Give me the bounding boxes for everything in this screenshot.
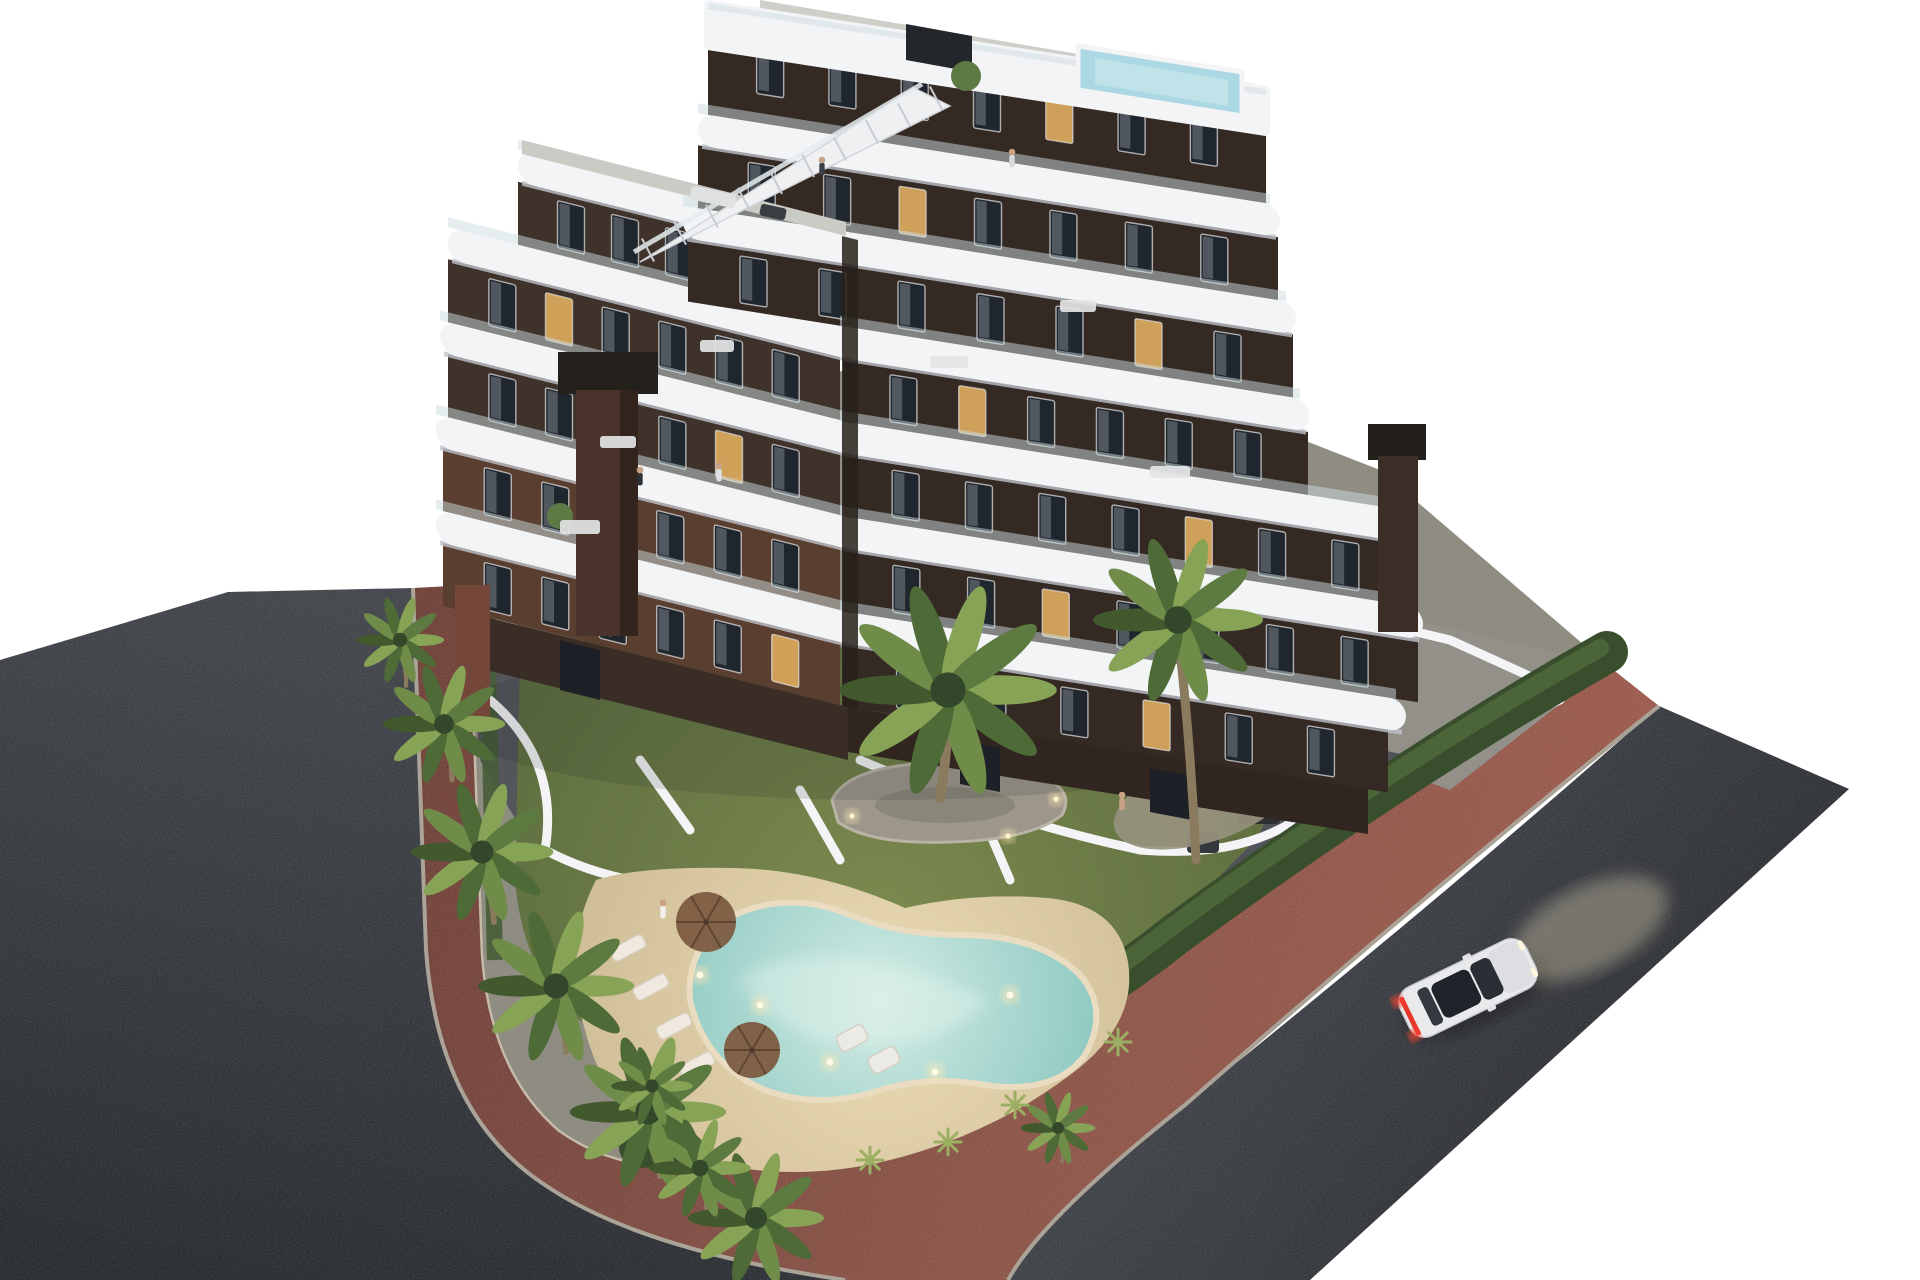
pool-light [1007, 992, 1014, 999]
curtain [1114, 507, 1124, 550]
person-body [819, 163, 824, 176]
curtain [1127, 224, 1137, 267]
curtain [900, 283, 910, 326]
curtain [977, 200, 987, 243]
parasol-pole [704, 920, 709, 925]
parasol-pole [750, 1048, 755, 1053]
curtain [604, 309, 614, 353]
curtain [826, 176, 836, 219]
curtain [774, 352, 784, 396]
curtain [614, 217, 624, 261]
curtain [1052, 212, 1062, 255]
lit-window [1135, 318, 1162, 369]
building-corner-seam [842, 236, 858, 716]
lit-window [899, 186, 926, 237]
curtain [1334, 542, 1344, 585]
curtain [1261, 530, 1271, 573]
person-head [1009, 149, 1016, 156]
curtain [1041, 496, 1051, 539]
pool-light [827, 1059, 834, 1066]
person-body [637, 473, 642, 486]
curtain [1227, 715, 1237, 758]
curtain [491, 376, 501, 420]
curtain [1309, 728, 1319, 771]
curtain [742, 258, 752, 301]
person-head [819, 157, 826, 164]
curtain [486, 470, 496, 514]
garden-light [1005, 833, 1010, 838]
curtain [894, 472, 904, 515]
curtain [548, 390, 558, 434]
pool-light [757, 1002, 764, 1009]
person-body [660, 906, 665, 919]
lit-window [1143, 700, 1170, 751]
lit-window [1042, 589, 1069, 640]
curtain [892, 377, 902, 420]
curtain [544, 579, 554, 623]
curtain [895, 567, 905, 610]
curtain [560, 203, 570, 247]
curtain [1343, 638, 1353, 681]
curtain [661, 323, 671, 367]
curtain [774, 541, 784, 585]
curtain [1098, 410, 1108, 453]
curtain [967, 484, 977, 527]
curtain [716, 527, 726, 571]
curtain [1167, 421, 1177, 464]
person-head [716, 463, 723, 470]
curtain [1236, 431, 1246, 474]
curtain [821, 271, 831, 314]
curtain [1063, 689, 1073, 732]
lit-window [959, 386, 986, 437]
curtain [491, 281, 501, 325]
curtain [979, 296, 989, 339]
person-body [1009, 155, 1014, 168]
garden-light [1053, 796, 1058, 801]
curtain [1203, 236, 1213, 279]
architectural-render-image [0, 0, 1920, 1280]
person-body [716, 469, 721, 482]
curtain [1030, 399, 1040, 442]
roof-planter-tree [951, 61, 981, 91]
curtain [774, 447, 784, 491]
curtain [716, 622, 726, 666]
lit-window [772, 634, 799, 688]
curtain [1058, 308, 1068, 351]
person-body [1119, 798, 1124, 811]
curtain [668, 230, 678, 274]
person-head [1119, 792, 1126, 799]
person-head [660, 900, 667, 907]
garden-light [849, 813, 854, 818]
pool-light [932, 1069, 939, 1076]
curtain [1216, 333, 1226, 376]
curtain [659, 513, 669, 557]
pool-light [697, 972, 704, 979]
curtain [661, 418, 671, 462]
curtain [1268, 627, 1278, 670]
person-head [637, 467, 644, 474]
curtain [659, 608, 669, 652]
